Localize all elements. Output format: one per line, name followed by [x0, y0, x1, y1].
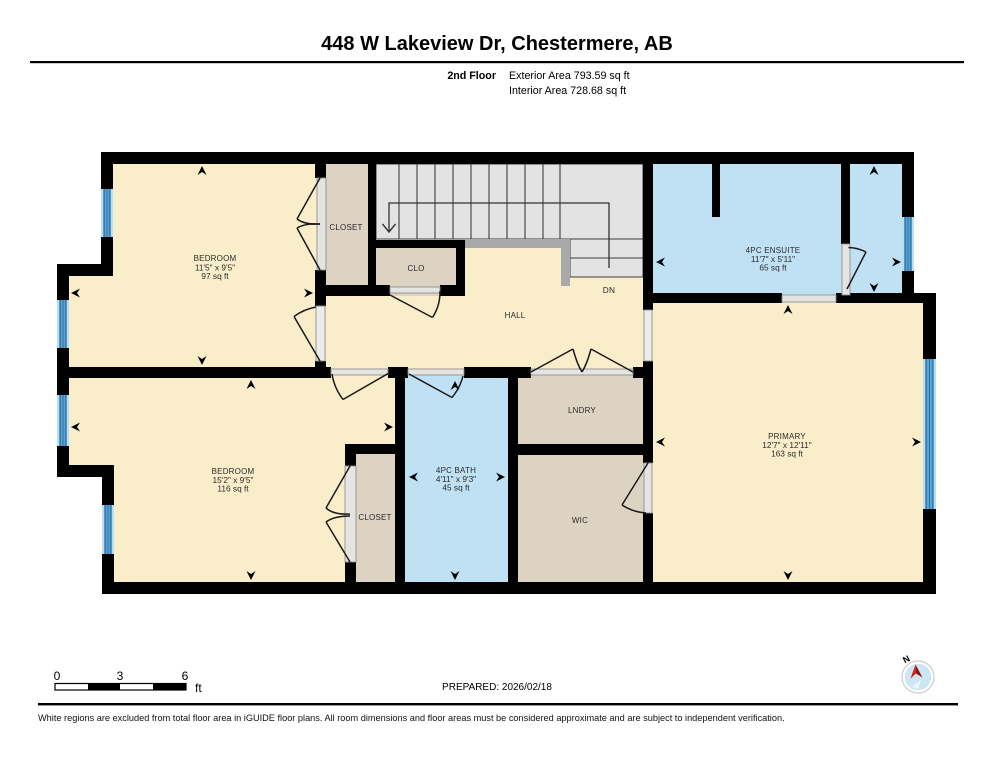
svg-text:163 sq ft: 163 sq ft	[771, 449, 804, 459]
svg-text:Interior Area 728.68 sq ft: Interior Area 728.68 sq ft	[509, 85, 626, 97]
svg-text:DN: DN	[603, 285, 616, 295]
svg-text:CLOSET: CLOSET	[329, 223, 362, 232]
svg-text:HALL: HALL	[505, 311, 526, 320]
svg-text:ft: ft	[195, 681, 202, 695]
svg-text:CLOSET: CLOSET	[358, 513, 391, 522]
svg-text:0: 0	[54, 669, 61, 683]
svg-text:Exterior Area 793.59 sq ft: Exterior Area 793.59 sq ft	[509, 70, 630, 82]
svg-text:97 sq ft: 97 sq ft	[201, 271, 229, 281]
svg-text:White regions are excluded fro: White regions are excluded from total fl…	[38, 713, 785, 723]
svg-text:CLO: CLO	[407, 264, 424, 273]
svg-text:PREPARED: 2026/02/18: PREPARED: 2026/02/18	[442, 682, 552, 693]
svg-text:45 sq ft: 45 sq ft	[442, 483, 470, 493]
svg-text:116 sq ft: 116 sq ft	[217, 484, 249, 494]
svg-text:2nd Floor: 2nd Floor	[447, 70, 496, 82]
svg-text:3: 3	[117, 669, 124, 683]
svg-text:WIC: WIC	[572, 516, 588, 525]
svg-text:65 sq ft: 65 sq ft	[759, 263, 787, 273]
svg-text:LNDRY: LNDRY	[568, 406, 596, 415]
svg-text:448 W Lakeview Dr, Chestermere: 448 W Lakeview Dr, Chestermere, AB	[321, 33, 673, 55]
svg-text:6: 6	[182, 669, 189, 683]
